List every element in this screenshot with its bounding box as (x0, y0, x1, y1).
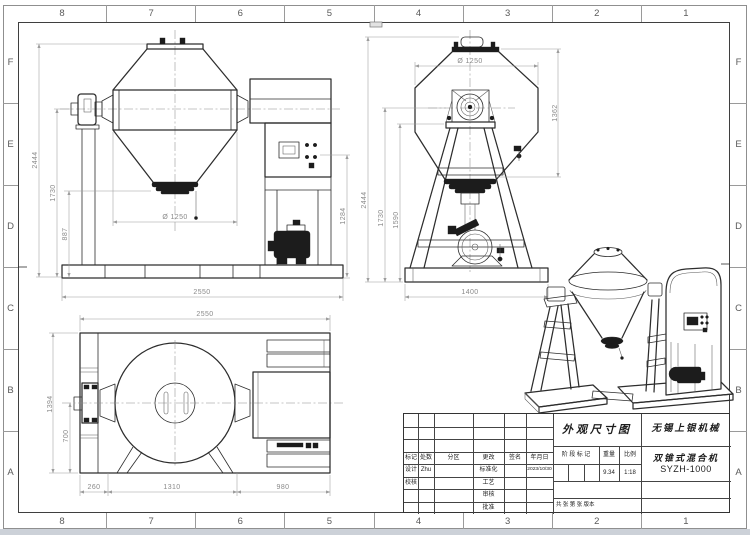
dim-label: 887 (62, 228, 69, 241)
dim-label: 980 (277, 484, 290, 491)
tb-designer: Zhu (418, 464, 434, 477)
tb-date: 2023/10/30 (526, 464, 553, 477)
dim-label: 2550 (196, 311, 213, 318)
tb-row-standard: 标准化 (473, 464, 504, 477)
tb-col-change: 更改 (473, 452, 504, 465)
dim-label: 1730 (378, 209, 385, 226)
tb-row-check: 校核 (404, 477, 418, 490)
dim-label: 1394 (47, 395, 54, 412)
side-view: Ø 1250 1362 2444 1730 1590 1400 (361, 30, 561, 301)
tb-product: 双锥式混合机 SYZH-1000 (641, 446, 731, 481)
dim-label: 1284 (340, 207, 347, 224)
tb-weight-value: 9.34 (599, 464, 619, 481)
tb-col-date: 年月日 (526, 452, 553, 465)
tb-company: 无锡上银机械 (641, 414, 731, 446)
tb-col-zone: 分区 (434, 452, 473, 465)
plan-view: 2550 1394 700 260 1310 980 (47, 311, 345, 496)
tb-row-design: 设计 (404, 464, 418, 477)
tb-doc-title: 外观尺寸图 (553, 414, 641, 446)
tb-scale-value: 1:18 (619, 464, 641, 481)
tb-row-review: 审核 (473, 489, 504, 502)
tb-stage-label: 阶 段 标 记 (553, 446, 599, 464)
tb-row-process: 工艺 (473, 477, 504, 490)
dim-label: 1362 (552, 104, 559, 121)
dim-label: 1590 (393, 211, 400, 228)
dim-label: 1730 (50, 184, 57, 201)
isometric-view (525, 247, 733, 413)
dim-label: 260 (88, 484, 101, 491)
tb-weight-label: 重量 (599, 446, 619, 464)
dim-label: 2444 (361, 191, 368, 208)
tb-col-mark: 标记 (404, 452, 418, 465)
side-view-dimensions: Ø 1250 1362 2444 1730 1590 1400 (361, 37, 561, 301)
page-edge-shadow (0, 529, 750, 535)
tb-sheet-info: 共 张 第 张 版本 (553, 498, 644, 514)
drawing-sheet: 8 7 6 5 4 3 2 1 8 7 6 5 4 3 2 1 F E D C … (0, 0, 750, 535)
tb-scale-label: 比例 (619, 446, 641, 464)
dim-label: 1310 (163, 484, 180, 491)
tb-col-count: 处数 (418, 452, 434, 465)
dim-label: Ø 1250 (162, 214, 187, 221)
tb-col-sign: 签名 (504, 452, 526, 465)
plan-view-dimensions: 2550 1394 700 260 1310 980 (47, 311, 330, 496)
dim-label: Ø 1250 (457, 58, 482, 65)
centering-mark (370, 22, 382, 27)
dim-label: 700 (63, 430, 70, 443)
tb-product-name: 双锥式混合机 (653, 454, 719, 463)
dim-label: 1400 (461, 289, 478, 296)
title-block: 标记 处数 分区 更改 签名 年月日 设计 Zhu 标准化 2023/10/30… (403, 413, 730, 513)
tb-row-approve: 批准 (473, 502, 504, 515)
front-view: 2444 1730 887 Ø 1250 1284 2550 (32, 30, 350, 301)
dim-label: 2444 (32, 151, 39, 168)
dim-label: 2550 (193, 289, 210, 296)
tb-model-number: SYZH-1000 (660, 465, 712, 474)
